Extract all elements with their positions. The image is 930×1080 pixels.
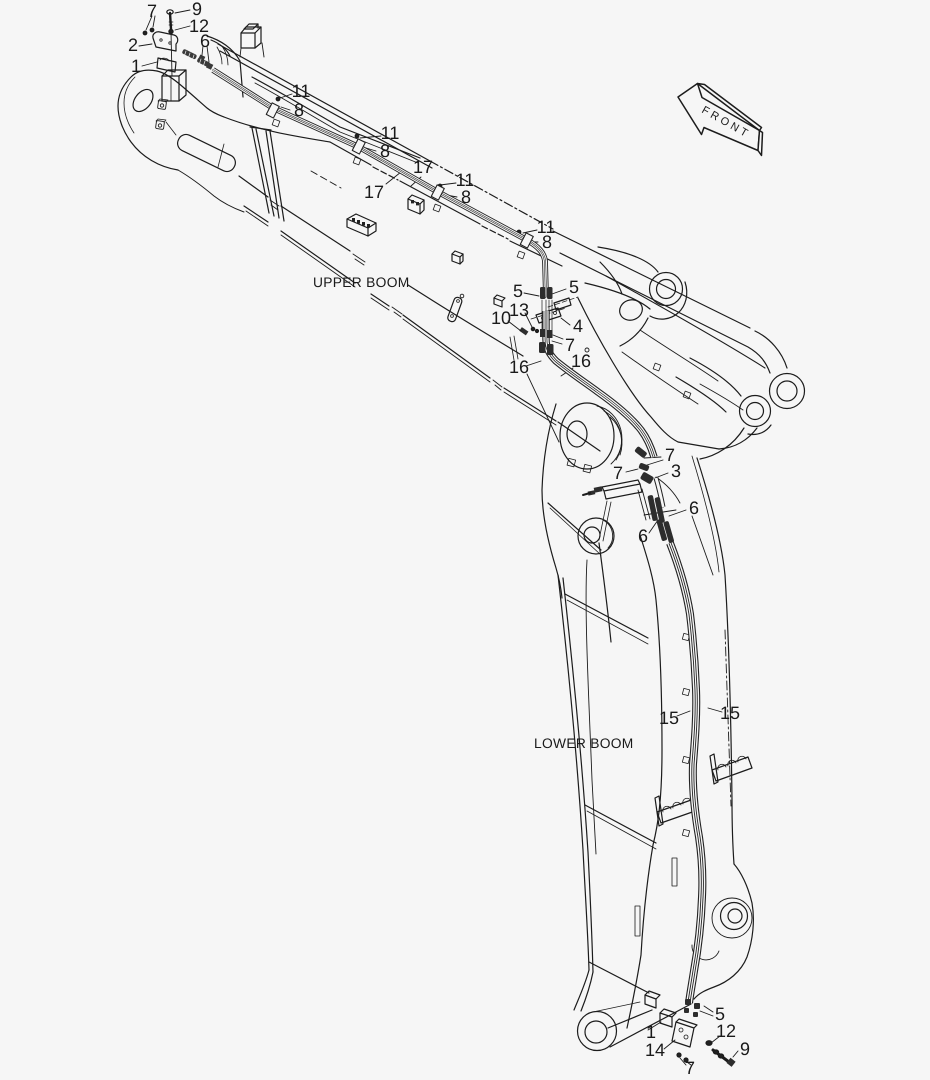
svg-text:15: 15 (720, 703, 740, 723)
svg-text:2: 2 (128, 35, 138, 55)
svg-text:15: 15 (659, 708, 679, 728)
svg-text:14: 14 (645, 1040, 665, 1060)
svg-text:1: 1 (646, 1022, 656, 1042)
svg-text:5: 5 (569, 277, 579, 297)
svg-text:11: 11 (292, 81, 311, 101)
svg-text:UPPER BOOM: UPPER BOOM (313, 275, 410, 290)
svg-text:17: 17 (364, 182, 384, 202)
svg-text:7: 7 (147, 1, 157, 21)
svg-text:8: 8 (294, 100, 304, 120)
svg-text:LOWER BOOM: LOWER BOOM (534, 736, 634, 751)
svg-text:6: 6 (638, 526, 648, 546)
svg-text:16: 16 (571, 351, 591, 371)
svg-text:1: 1 (131, 56, 141, 76)
svg-text:7: 7 (685, 1058, 695, 1078)
svg-text:6: 6 (689, 498, 699, 518)
svg-text:5: 5 (513, 281, 523, 301)
svg-text:9: 9 (740, 1039, 750, 1059)
svg-text:4: 4 (573, 316, 583, 336)
svg-text:12: 12 (716, 1021, 736, 1041)
svg-text:10: 10 (491, 308, 511, 328)
svg-text:8: 8 (461, 187, 471, 207)
svg-text:8: 8 (542, 232, 552, 252)
svg-text:16: 16 (509, 357, 529, 377)
svg-text:13: 13 (509, 300, 529, 320)
svg-text:11: 11 (381, 123, 400, 143)
svg-text:3: 3 (671, 461, 681, 481)
svg-text:8: 8 (380, 141, 390, 161)
svg-text:7: 7 (613, 463, 623, 483)
svg-text:17: 17 (413, 157, 433, 177)
svg-text:6: 6 (200, 31, 210, 51)
